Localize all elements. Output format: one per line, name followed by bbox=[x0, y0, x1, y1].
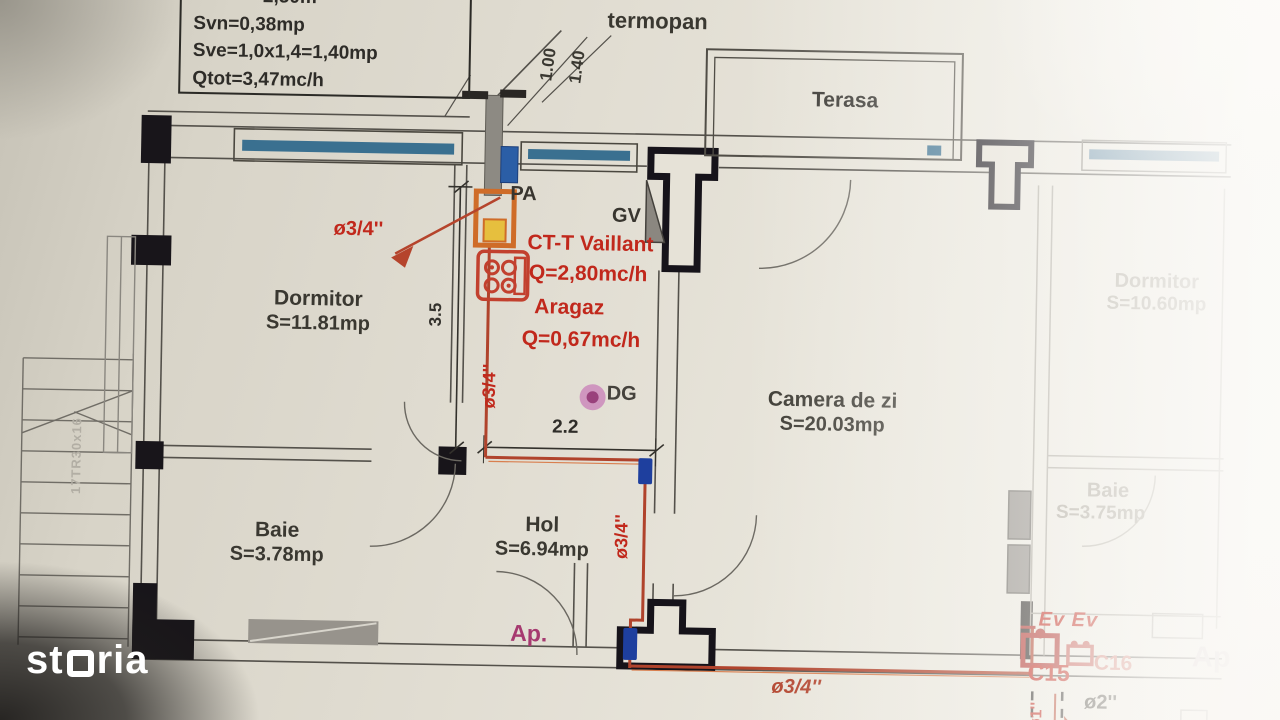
stove-label: Aragaz bbox=[534, 294, 604, 320]
stairs-label: 17TR30x16 bbox=[67, 390, 85, 520]
room-area: S=3.75mp bbox=[998, 501, 1202, 528]
storia-o-glyph bbox=[67, 650, 94, 677]
pipe-connector bbox=[638, 458, 652, 484]
storia-logo: stria bbox=[26, 638, 149, 683]
room-label-baie-2: Baie S=3.75mp bbox=[1012, 477, 1203, 527]
boiler-label: CT-T Vaillant bbox=[527, 230, 653, 257]
ev-label: Ev Ev bbox=[1038, 607, 1098, 632]
room-label-dormitor-2: Dormitor S=10.60mp bbox=[1066, 268, 1247, 318]
termopan-label: termopan bbox=[607, 7, 708, 35]
kitchen-width-dim: 2.2 bbox=[552, 417, 579, 440]
gv-label: GV bbox=[612, 204, 641, 229]
pipe34-bottom-label: ø3/4'' bbox=[771, 675, 821, 700]
room-area: S=6.94mp bbox=[457, 536, 627, 563]
pipe2-label: ø2'' bbox=[1084, 690, 1117, 715]
floorplan-photo: =2,50m Svn=0,38mp Sve=1,0x1,4=1,40mp Qto… bbox=[0, 0, 1280, 720]
room-label-dormitor-1: Dormitor S=11.81mp bbox=[228, 285, 409, 337]
room-label-terasa: Terasa bbox=[780, 87, 910, 115]
room-name: Baie bbox=[192, 516, 362, 544]
ap-faded-label: Ap bbox=[1192, 640, 1231, 675]
pa-label: PA bbox=[510, 182, 537, 206]
kitchen-depth-dim: 3.5 bbox=[426, 292, 447, 336]
room-label-hol: Hol S=6.94mp bbox=[457, 511, 628, 563]
gas-outlet-marker bbox=[579, 384, 605, 410]
pipe1-label: ø1'' bbox=[1027, 687, 1047, 720]
walls-thin bbox=[138, 23, 1233, 679]
legend-qtot: Qtot=3,47mc/h bbox=[192, 64, 468, 97]
pipe34-kitchen-label: ø3/4'' bbox=[478, 351, 501, 421]
room-area: S=10.60mp bbox=[1066, 292, 1246, 318]
entry-label: Ap. bbox=[510, 620, 548, 648]
room-name: Dormitor bbox=[228, 285, 408, 313]
c16-label: C16 bbox=[1094, 650, 1133, 676]
room-name: Hol bbox=[457, 511, 627, 539]
stove-flow-label: Q=0,67mc/h bbox=[521, 326, 640, 353]
stove-icon bbox=[477, 251, 528, 300]
c15-label: C15 bbox=[1027, 659, 1070, 687]
room-area: S=3.78mp bbox=[191, 541, 361, 568]
storia-logo-part2: ria bbox=[97, 638, 149, 683]
pa-marker bbox=[501, 147, 519, 183]
storia-logo-part1: st bbox=[26, 638, 64, 683]
floorplan-drawing: =2,50m Svn=0,38mp Sve=1,0x1,4=1,40mp Qto… bbox=[128, 0, 1280, 720]
ventilation-legend: =2,50m Svn=0,38mp Sve=1,0x1,4=1,40mp Qto… bbox=[178, 0, 472, 99]
room-area: S=11.81mp bbox=[228, 310, 408, 337]
gas-installation bbox=[383, 190, 1101, 720]
room-name: Dormitor bbox=[1067, 268, 1247, 295]
pipe-connector bbox=[623, 628, 638, 660]
room-name: Camera de zi bbox=[732, 386, 932, 415]
room-name: Baie bbox=[1013, 477, 1203, 504]
room-label-camera: Camera de zi S=20.03mp bbox=[732, 386, 933, 439]
room-area: S=20.03mp bbox=[732, 411, 932, 439]
pipe34-hall-label: ø3/4'' bbox=[611, 501, 634, 571]
pipe34-arrow-label: ø3/4'' bbox=[333, 216, 383, 241]
room-label-baie-1: Baie S=3.78mp bbox=[191, 516, 362, 568]
dg-label: DG bbox=[606, 382, 636, 407]
boiler-flow-label: Q=2,80mc/h bbox=[529, 260, 648, 287]
